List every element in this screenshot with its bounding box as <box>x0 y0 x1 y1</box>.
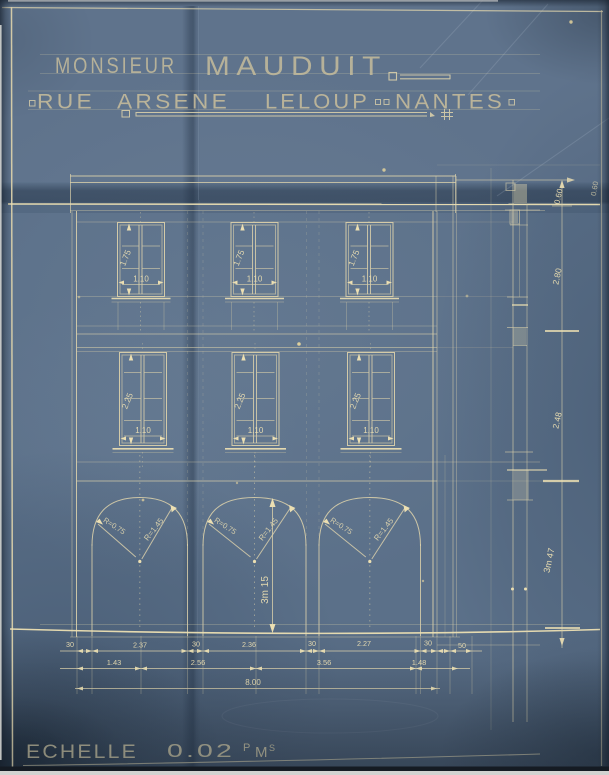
svg-text:1.10: 1.10 <box>362 275 378 284</box>
svg-text:1.10: 1.10 <box>133 275 149 284</box>
svg-text:2.37: 2.37 <box>133 641 147 650</box>
svg-text:3m 15: 3m 15 <box>260 576 271 604</box>
svg-text:1.10: 1.10 <box>135 426 151 435</box>
svg-text:2.36: 2.36 <box>242 640 256 649</box>
svg-text:LELOUP: LELOUP <box>265 91 370 114</box>
svg-text:30: 30 <box>192 640 200 649</box>
svg-text:1.10: 1.10 <box>248 426 264 435</box>
svg-text:30: 30 <box>424 639 432 648</box>
svg-text:MAUDUIT: MAUDUIT <box>205 51 387 81</box>
svg-text:ARSENE: ARSENE <box>117 91 230 114</box>
svg-text:RUE: RUE <box>37 91 95 114</box>
svg-text:1.10: 1.10 <box>247 275 263 284</box>
svg-text:30: 30 <box>66 640 74 649</box>
svg-text:2.27: 2.27 <box>357 639 371 648</box>
svg-text:30: 30 <box>308 639 316 648</box>
svg-text:MONSIEUR: MONSIEUR <box>55 53 177 78</box>
svg-text:1.10: 1.10 <box>363 426 379 435</box>
